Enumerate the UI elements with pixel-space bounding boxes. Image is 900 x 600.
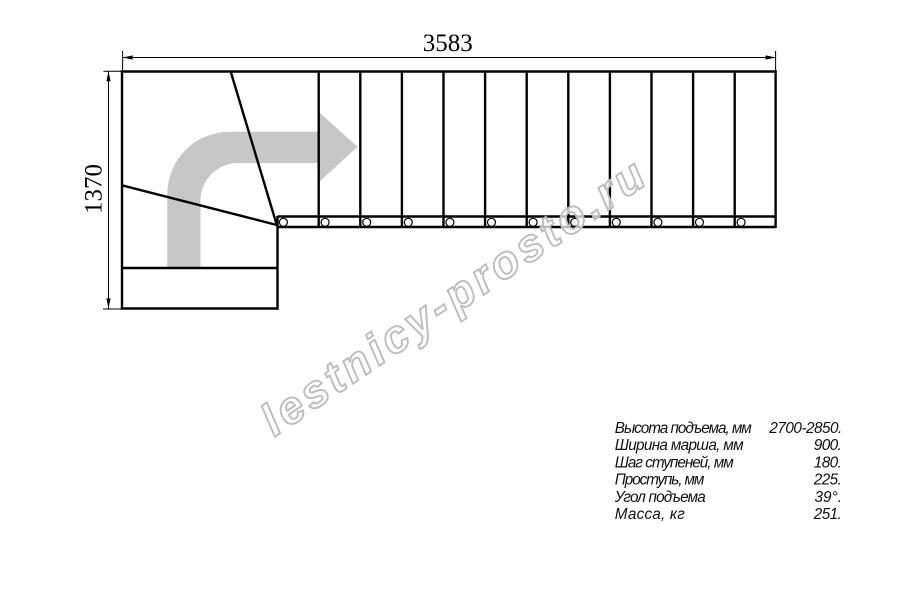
svg-text:lestnicy-prosto.ru: lestnicy-prosto.ru <box>251 147 657 446</box>
svg-text:251.: 251. <box>813 506 842 523</box>
svg-text:39°.: 39°. <box>815 489 843 506</box>
svg-text:180.: 180. <box>814 454 842 471</box>
svg-text:Шаг ступеней, мм: Шаг ступеней, мм <box>615 454 735 471</box>
svg-text:2700-2850.: 2700-2850. <box>768 420 842 437</box>
svg-text:3583: 3583 <box>423 30 473 57</box>
svg-text:Высота подъема, мм: Высота подъема, мм <box>615 420 753 437</box>
svg-text:1370: 1370 <box>81 164 108 214</box>
svg-text:Проступь, мм: Проступь, мм <box>615 472 705 489</box>
svg-text:Угол подъема: Угол подъема <box>614 489 706 506</box>
svg-text:225.: 225. <box>813 472 842 489</box>
svg-text:900.: 900. <box>814 437 842 454</box>
svg-text:Масса, кг: Масса, кг <box>615 506 685 523</box>
svg-text:Ширина марша, мм: Ширина марша, мм <box>615 437 744 454</box>
